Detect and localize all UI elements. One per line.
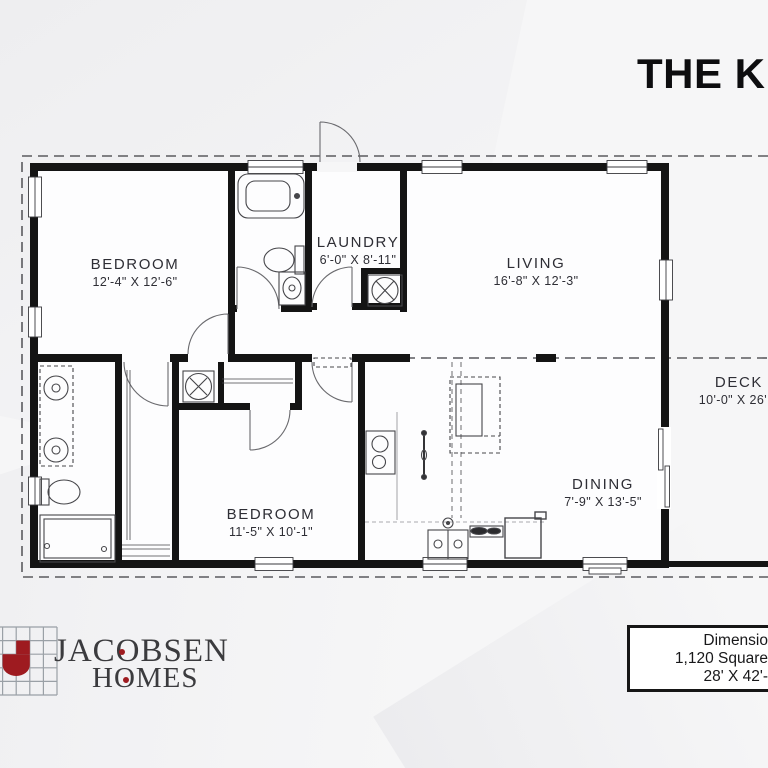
room-dims: 6'-0" X 8'-11" bbox=[317, 253, 400, 267]
logo-wordmark-homes: HOMES bbox=[92, 662, 199, 695]
logo-red-arch bbox=[3, 654, 30, 676]
sliding-door-symbol bbox=[657, 427, 671, 509]
room-label-deck: DECK 10'-0" X 26' bbox=[699, 374, 767, 407]
room-label-dining: DINING 7'-9" X 13'-5" bbox=[564, 476, 642, 509]
room-name: LIVING bbox=[494, 255, 579, 272]
room-label-living: LIVING 16'-8" X 12'-3" bbox=[494, 255, 579, 288]
entry-door-opening bbox=[317, 162, 357, 172]
room-label-laundry: LAUNDRY 6'-0" X 8'-11" bbox=[317, 234, 400, 267]
page-title: THE K bbox=[637, 50, 766, 98]
room-dims: 16'-8" X 12'-3" bbox=[494, 274, 579, 288]
info-line-2: 1,120 Square bbox=[630, 650, 768, 668]
room-dims: 12'-4" X 12'-6" bbox=[91, 275, 180, 289]
room-dims: 10'-0" X 26' bbox=[699, 393, 767, 407]
room-name: DECK bbox=[699, 374, 767, 391]
room-dims: 7'-9" X 13'-5" bbox=[564, 495, 642, 509]
room-name: LAUNDRY bbox=[317, 234, 400, 251]
info-line-3: 28' X 42'- bbox=[630, 668, 768, 686]
room-name: BEDROOM bbox=[227, 506, 316, 523]
logo-o-dot bbox=[119, 649, 125, 655]
dimensions-info-box: Dimensio 1,120 Square 28' X 42'- bbox=[627, 625, 768, 692]
info-line-1: Dimensio bbox=[630, 632, 768, 650]
room-dims: 11'-5" X 10'-1" bbox=[227, 525, 316, 539]
brochure-page: THE K BEDROOM 12'-4" X 12'-6" LAUNDRY 6'… bbox=[0, 0, 768, 768]
room-name: DINING bbox=[564, 476, 642, 493]
room-label-bedroom-2: BEDROOM 11'-5" X 10'-1" bbox=[227, 506, 316, 539]
logo-red-square bbox=[16, 641, 30, 655]
room-name: BEDROOM bbox=[91, 256, 180, 273]
logo-o-dot bbox=[123, 677, 129, 683]
logo-grid-mark bbox=[0, 627, 57, 695]
room-label-bedroom-1: BEDROOM 12'-4" X 12'-6" bbox=[91, 256, 180, 289]
